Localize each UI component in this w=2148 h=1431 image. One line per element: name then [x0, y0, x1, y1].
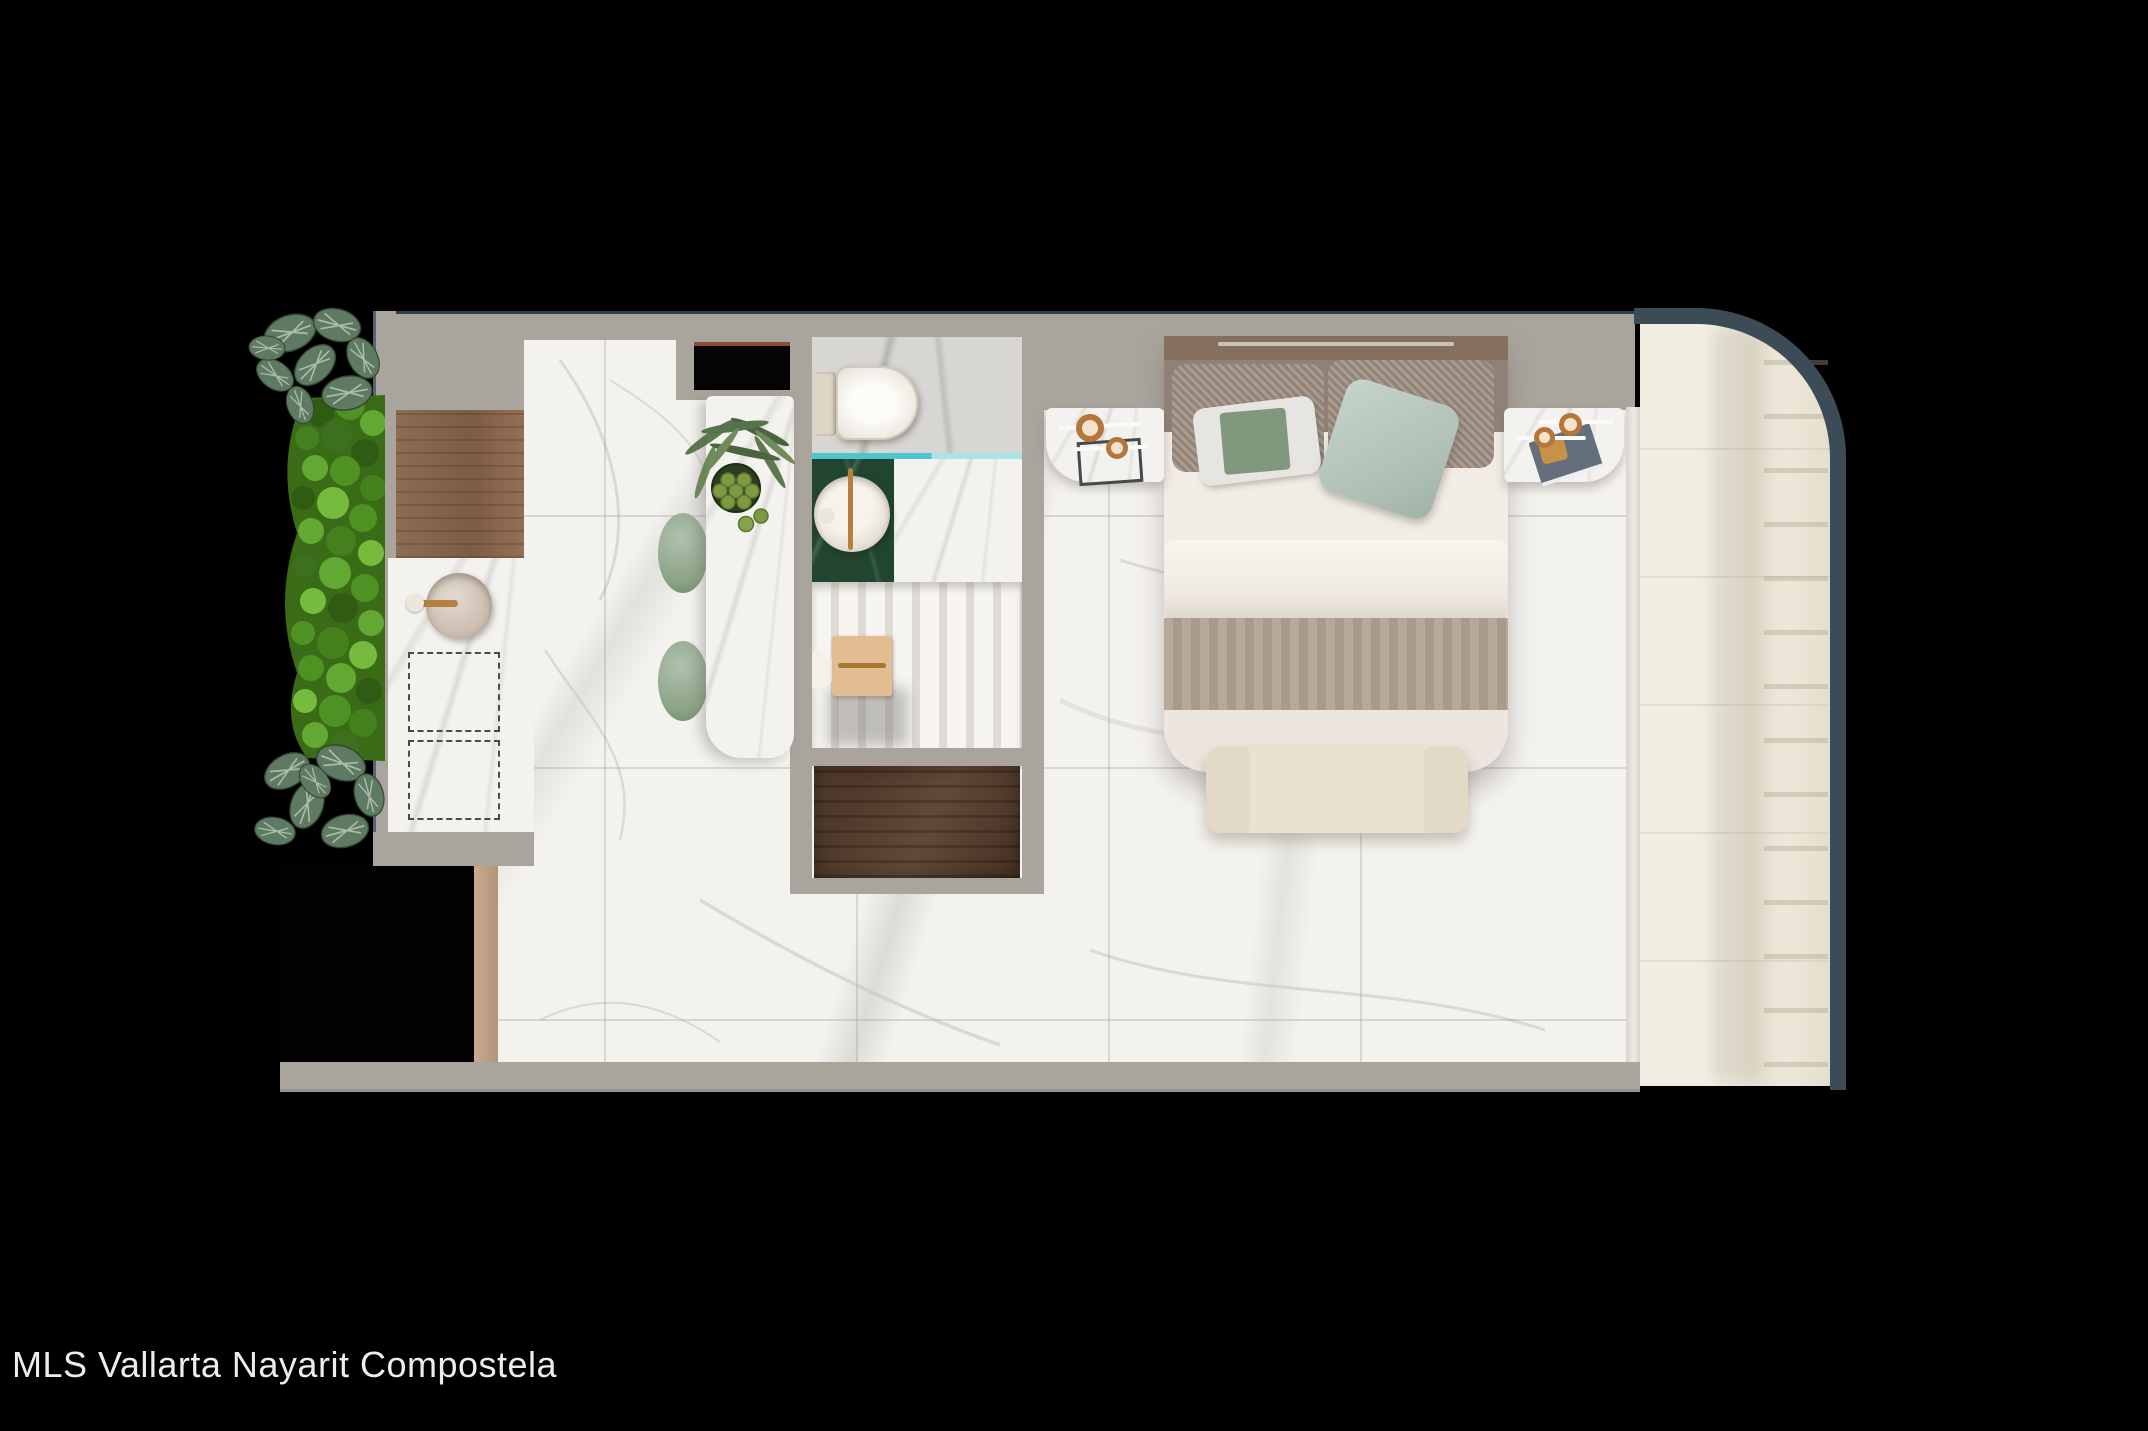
nightstand-left-lamp-2 — [1106, 437, 1128, 459]
accent-pillow-white — [1192, 395, 1323, 487]
kitchen-wood-counter — [396, 410, 524, 558]
tile-line-h3 — [393, 1019, 1633, 1021]
kitchen-end-wall — [373, 832, 534, 866]
headboard-trim — [1218, 342, 1454, 346]
double-bed — [1164, 336, 1508, 772]
vertical-garden — [245, 303, 385, 853]
closet-shadow — [828, 688, 908, 746]
bench-arm-right — [1424, 747, 1468, 833]
closet-dresser-wall — [812, 748, 1022, 766]
tile-line-v1 — [604, 337, 606, 1062]
bottom-wall — [280, 1062, 1640, 1092]
appliance-outline-2 — [408, 740, 500, 820]
duvet-fold — [1164, 540, 1508, 622]
lower-left-wall-edge — [474, 866, 498, 1062]
island-plant — [650, 392, 820, 552]
closet-bench-handle — [838, 663, 886, 668]
dresser-bottom-wall — [790, 878, 1044, 894]
vanity-faucet — [848, 468, 853, 550]
bathroom-right-wall — [1022, 337, 1044, 894]
appliance-outline-1 — [408, 652, 500, 732]
nightstand-right-lamp-1 — [1559, 413, 1582, 436]
bathroom-corridor-floor — [894, 459, 1022, 582]
toilet-icon — [836, 366, 918, 440]
watermark-caption: MLS Vallarta Nayarit Compostela — [12, 1344, 557, 1386]
bar-stool-2 — [658, 641, 708, 721]
floorplan-canvas: MLS Vallarta Nayarit Compostela — [0, 0, 2148, 1431]
kitchen-faucet-handle — [406, 594, 424, 612]
balcony-railing — [1634, 308, 1846, 1090]
entry-wall-block — [391, 337, 524, 410]
vanity-faucet-handle — [819, 508, 835, 524]
bed-bench — [1206, 747, 1468, 833]
exterior-void — [280, 866, 474, 1062]
accent-pillow-green-panel — [1219, 407, 1290, 475]
bench-arm-left — [1206, 747, 1250, 833]
dresser — [814, 766, 1020, 878]
nightstand-left-lamp-1 — [1076, 414, 1104, 442]
nightstand-right-lamp-2 — [1534, 427, 1555, 448]
entry-door-recess — [694, 342, 790, 390]
blanket-runner — [1164, 618, 1508, 714]
